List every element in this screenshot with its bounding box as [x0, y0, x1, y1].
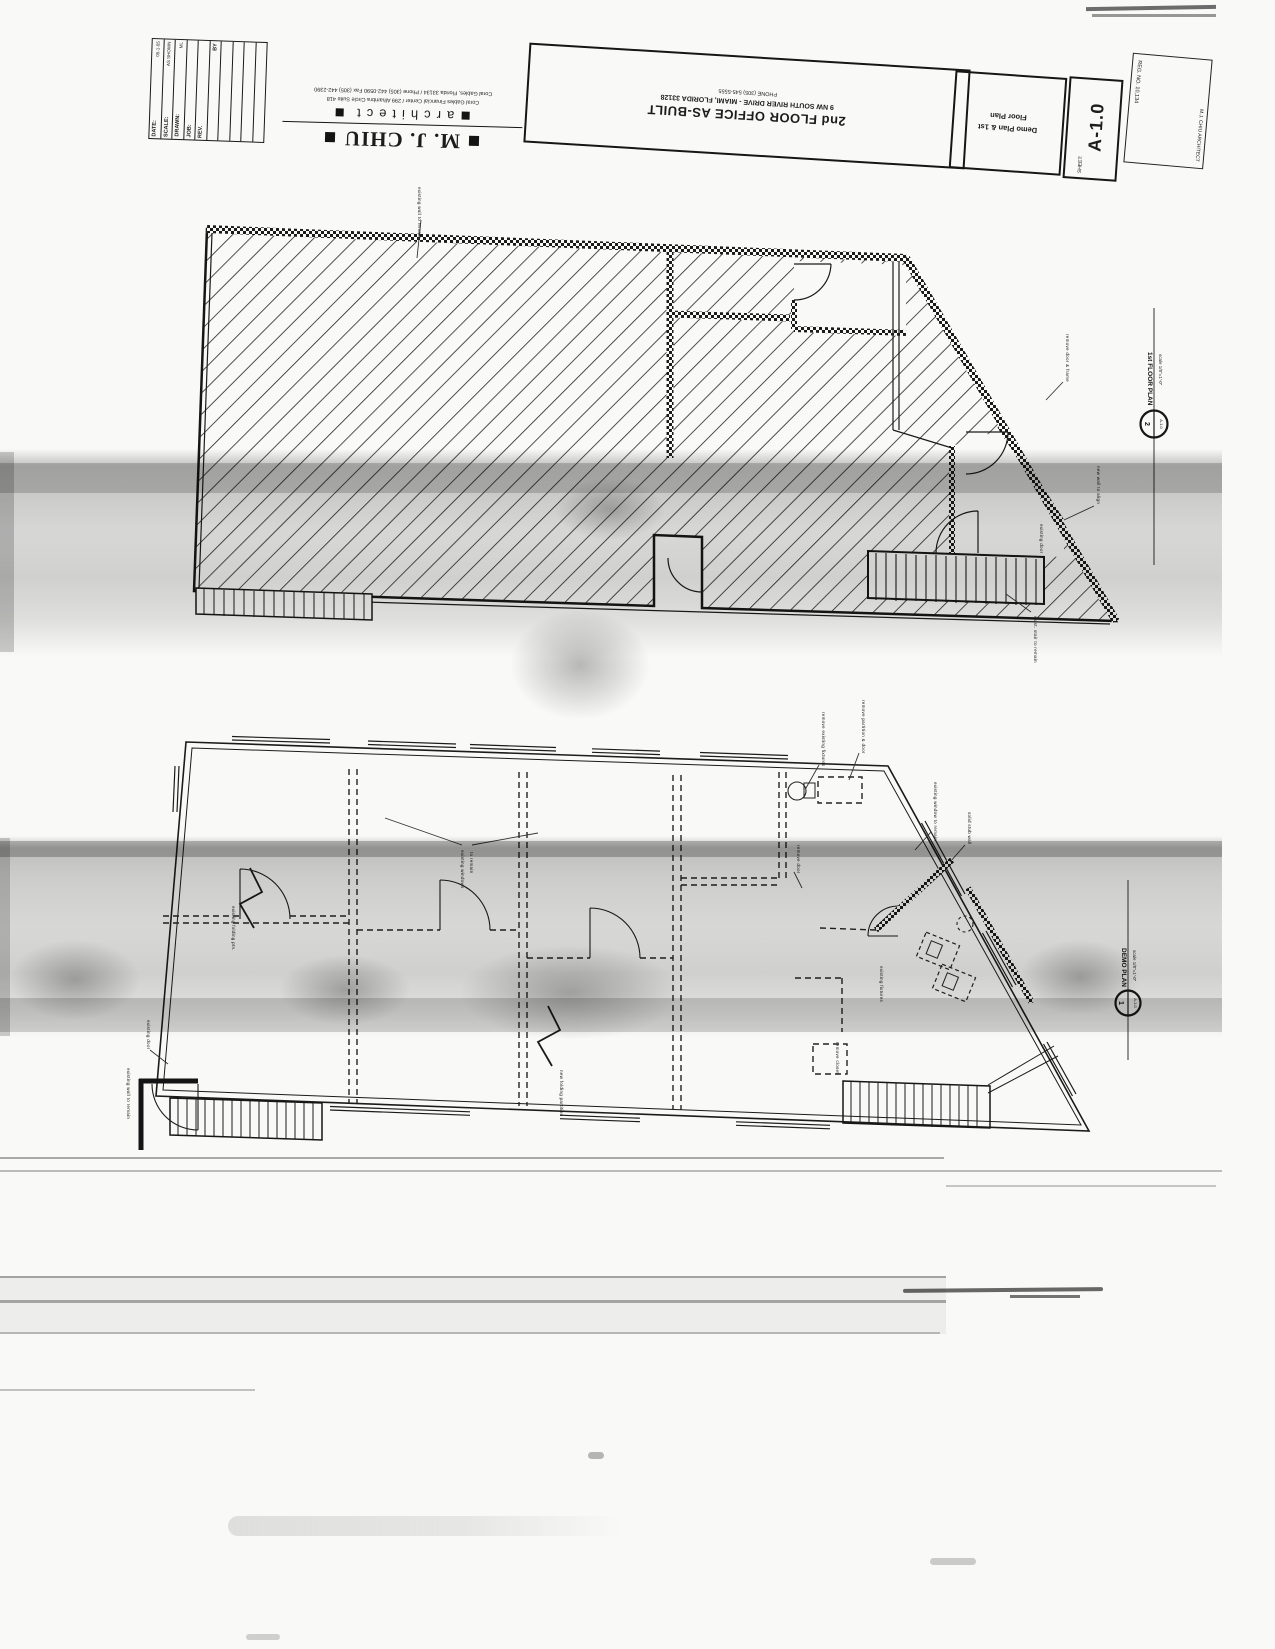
project-phone: PHONE (305) 545-5555 — [718, 87, 777, 97]
demo-plan-callout: DEMO PLAN scale 1/8"=1'-0" 1 A-1.0 — [1116, 880, 1141, 1060]
detail-sheet: A-1.0 — [1133, 998, 1138, 1008]
scanned-architectural-sheet: existing wall to remain remove door & fr… — [0, 0, 1275, 1649]
sheet-content-line2: Floor Plan — [990, 111, 1027, 123]
demo-plan: remove existing fixtures remove partitio… — [126, 700, 1141, 1150]
plan-note: existing fixtures — [879, 966, 884, 1003]
plan-note: remove closet — [835, 1042, 840, 1074]
window-lines — [173, 737, 1076, 1129]
plan-note: remove existing fixtures — [821, 712, 826, 767]
demo-partitions — [163, 769, 876, 1110]
by-label: BY — [212, 43, 218, 51]
plan-title: DEMO PLAN — [1120, 948, 1127, 987]
scale-value: AS SHOWN — [166, 42, 172, 67]
detail-sheet: A-1.0 — [1159, 419, 1164, 429]
firm-address: Coral Gables Financial Center / 299 Alha… — [283, 83, 523, 107]
revision-table: 05-1-05 DATE: AS SHOWN SCALE: ML DRAWN: … — [148, 38, 267, 143]
rev-label: REV. — [198, 125, 204, 138]
entry-vestibule — [139, 1079, 198, 1150]
first-floor-plan: existing wall to remain remove door & fr… — [194, 187, 1168, 663]
plan-note: to remain — [469, 852, 474, 874]
architect-stamp: M.J. CHIU ARCHITECT REG. NO. 10,134 — [1123, 53, 1212, 170]
logo-square-icon — [336, 109, 344, 117]
stamp-registration: REG. NO. 10,134 — [1133, 60, 1143, 103]
date-value: 05-1-05 — [155, 41, 161, 57]
restroom-area — [788, 782, 1032, 1003]
plan-scale: scale 1/8"=1'-0" — [1132, 950, 1137, 982]
plan-note: new folding partition — [559, 1070, 564, 1117]
firm-tagline: architect — [351, 106, 454, 124]
logo-square-icon — [325, 132, 335, 142]
plan-note: remove door — [796, 845, 801, 874]
plan-note: existing wall to remain — [417, 187, 422, 238]
plan-scale: scale 1/8"=1'-0" — [1158, 354, 1163, 386]
floor-plan-drawing: existing wall to remain remove door & fr… — [0, 0, 1275, 1649]
plan-note: remove partition & door — [861, 700, 866, 754]
plan-note: existing door — [146, 1020, 151, 1050]
firm-name: M. J. CHIU — [344, 125, 461, 153]
detail-number: 2 — [1143, 422, 1150, 426]
plan-note: solid stub wall — [967, 812, 972, 845]
break-line-symbol — [240, 868, 262, 928]
logo-square-icon — [469, 136, 479, 146]
lavatory-fixture — [788, 782, 806, 800]
drawn-value: ML — [178, 42, 183, 48]
plan-note: exist. stair to remain — [1033, 616, 1038, 663]
stair-treads — [851, 1082, 977, 1128]
sheet-content-line1: Demo Plan & 1st — [978, 122, 1038, 135]
plan-note: new wall to align — [1096, 466, 1101, 504]
sheet-content-box: Demo Plan & 1st Floor Plan — [949, 70, 1068, 176]
date-label: DATE: — [152, 120, 159, 137]
job-label: JOB: — [186, 124, 192, 137]
logo-square-icon — [461, 112, 469, 120]
plan-note: remove door & frame — [1065, 334, 1070, 382]
scale-label: SCALE: — [163, 116, 170, 137]
firm-logo-block: M. J. CHIU architect Coral Gables Financ… — [282, 47, 525, 155]
stamp-name: M.J. CHIU ARCHITECT — [1194, 109, 1205, 162]
plan-note: existing wall to remain — [126, 1068, 131, 1119]
plan-title: 1st FLOOR PLAN — [1146, 352, 1153, 406]
drawn-label: DRAWN: — [175, 114, 182, 137]
plan-note: existing folding ptn. — [231, 906, 236, 951]
first-floor-plan-callout: 1st FLOOR PLAN scale 1/8"=1'-0" 2 A-1.0 — [1141, 308, 1168, 565]
break-line-symbol — [538, 1006, 560, 1066]
plan-note: existing window to remain — [933, 782, 938, 841]
detail-number: 1 — [1117, 1001, 1124, 1005]
plan-note: existing windows — [460, 850, 465, 889]
plan-note: existing door — [1039, 524, 1044, 554]
sheet-number-box: SHEET: A-1.0 — [1063, 76, 1124, 182]
